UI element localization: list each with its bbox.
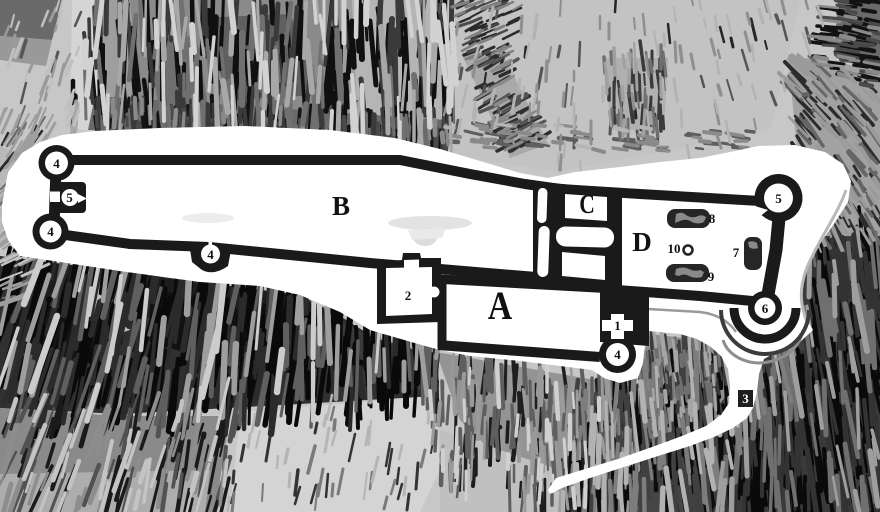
svg-text:6: 6 — [762, 301, 769, 316]
svg-text:D: D — [632, 227, 652, 257]
svg-text:B: B — [332, 191, 350, 221]
svg-text:4: 4 — [53, 156, 60, 171]
svg-text:A: A — [488, 283, 513, 327]
svg-text:3: 3 — [742, 391, 749, 406]
svg-text:4: 4 — [614, 347, 621, 362]
svg-text:2: 2 — [405, 288, 412, 303]
svg-text:8: 8 — [709, 211, 716, 226]
svg-text:9: 9 — [708, 269, 715, 284]
svg-text:5: 5 — [66, 190, 73, 205]
svg-text:C: C — [579, 190, 595, 220]
svg-text:10: 10 — [668, 241, 681, 256]
svg-text:4: 4 — [47, 224, 54, 239]
svg-text:7: 7 — [733, 245, 740, 260]
svg-text:5: 5 — [775, 191, 782, 206]
svg-text:4: 4 — [207, 247, 214, 262]
svg-text:1: 1 — [614, 318, 621, 333]
